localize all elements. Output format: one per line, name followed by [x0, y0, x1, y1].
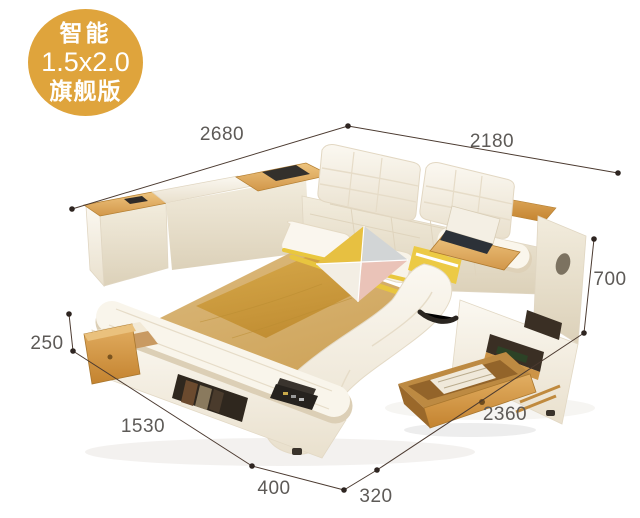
dimension-label-bottom-right: 2360	[483, 404, 527, 425]
left-head-cabinet	[84, 192, 168, 286]
drawer-knob-left	[108, 355, 113, 360]
dimension-label-bottom-left: 1530	[121, 416, 165, 437]
dimension-label-bottom-front-right: 320	[359, 486, 392, 507]
product-dimension-diagram: 智能 1.5x2.0 旗舰版	[0, 0, 640, 518]
bed-foot	[546, 410, 555, 416]
dimension-label-bottom-front-left: 400	[257, 478, 290, 499]
dimension-label-top-left: 2680	[200, 124, 244, 145]
dimension-line-left-drawer-height	[69, 314, 73, 351]
smart-bed-illustration: 2680 2180 700 250 1530 400 320 2360	[0, 0, 640, 518]
dimension-label-left-drawer: 250	[30, 333, 63, 354]
dimension-label-top-right: 2180	[470, 131, 514, 152]
dimension-label-right-height: 700	[593, 269, 626, 290]
bed-foot	[292, 448, 302, 455]
